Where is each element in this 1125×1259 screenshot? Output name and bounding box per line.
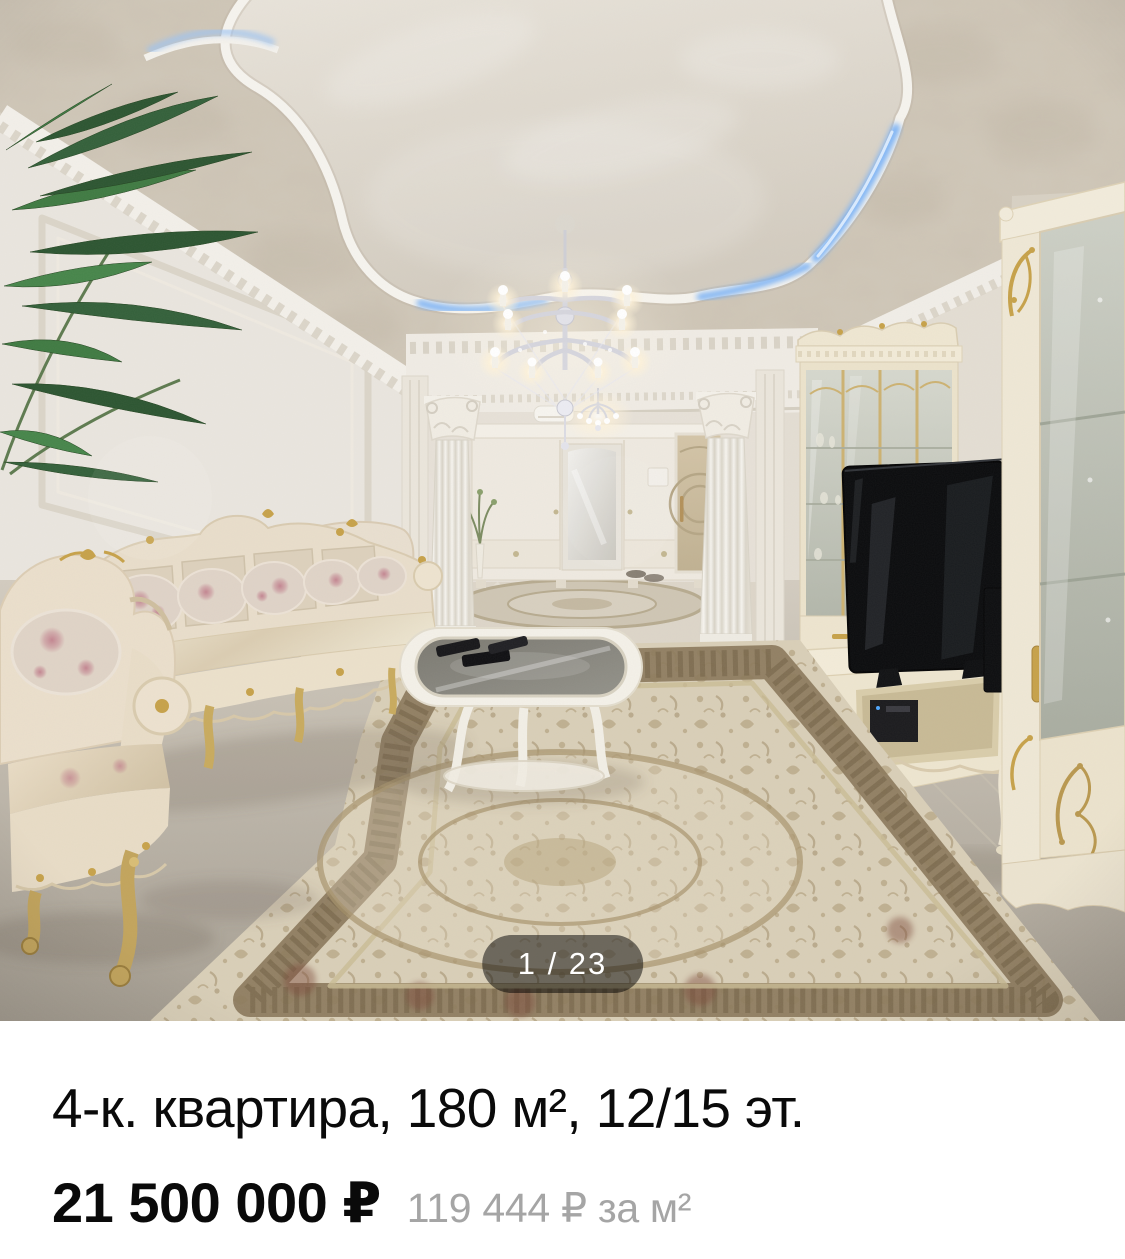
price-row: 21 500 000 ₽ 119 444 ₽ за м² bbox=[52, 1170, 1073, 1236]
living-room-photo bbox=[0, 0, 1125, 1021]
photo-counter-badge: 1 / 23 bbox=[482, 935, 644, 993]
price-per-square-meter: 119 444 ₽ за м² bbox=[407, 1184, 691, 1232]
photo-counter-label: 1 / 23 bbox=[518, 946, 608, 981]
listing-price: 21 500 000 ₽ bbox=[52, 1170, 381, 1236]
gallery-photo[interactable]: 1 / 23 bbox=[0, 0, 1125, 1021]
listing-screen: 1 / 23 4-к. квартира, 180 м², 12/15 эт. … bbox=[0, 0, 1125, 1236]
listing-info: 4-к. квартира, 180 м², 12/15 эт. 21 500 … bbox=[0, 1021, 1125, 1236]
listing-title: 4-к. квартира, 180 м², 12/15 эт. bbox=[52, 1077, 1073, 1140]
